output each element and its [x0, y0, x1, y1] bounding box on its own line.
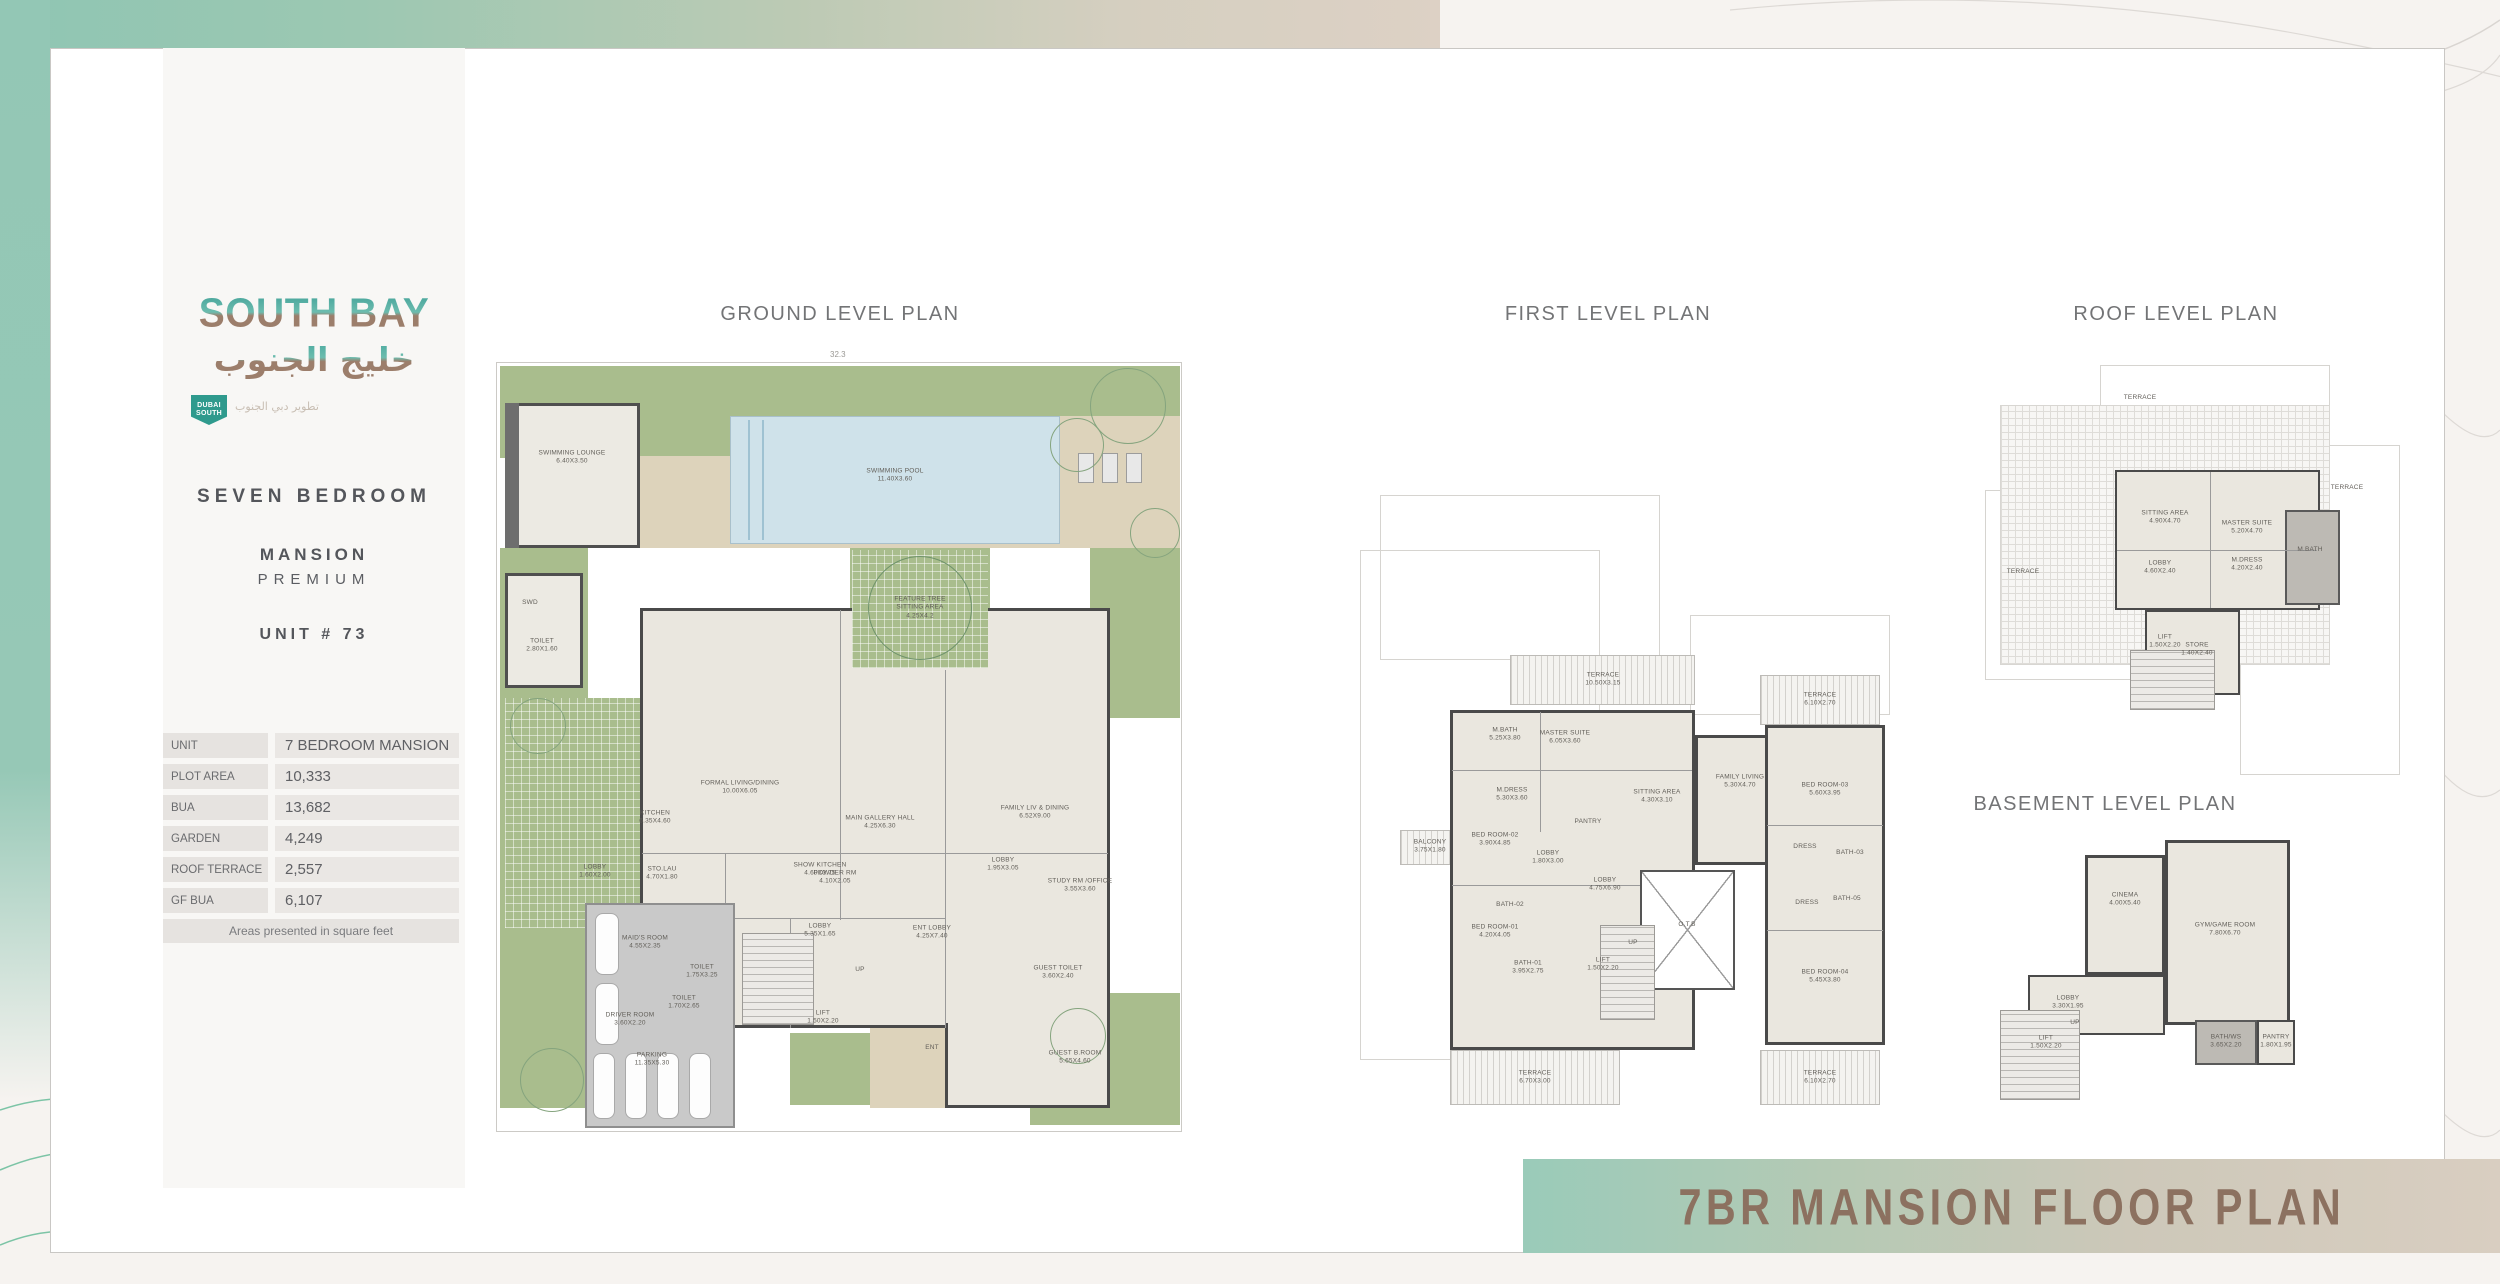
tree-icon [1050, 418, 1104, 472]
table-row-label: GARDEN [163, 826, 268, 851]
inner-wall [1767, 825, 1883, 826]
room-label: STO.LAU 4.70X1.80 [646, 866, 677, 883]
badge-tagline-arabic: تطوير دبي الجنوب [235, 400, 319, 413]
room-label: DRIVER ROOM 3.60X2.20 [606, 1012, 655, 1029]
brochure-page: SOUTH BAY خليج الجنوب DUBAI SOUTH تطوير … [0, 0, 2500, 1284]
car-icon [595, 913, 619, 975]
room-label: BATH-05 [1833, 895, 1861, 903]
room-label: POWDER RM 4.10X2.05 [814, 870, 857, 887]
ground-plan-title: GROUND LEVEL PLAN [590, 303, 1090, 326]
first-plan-title: FIRST LEVEL PLAN [1358, 303, 1858, 326]
table-row: GF BUA6,107 [163, 888, 459, 913]
room-label: M.BATH 5.25X3.80 [1489, 727, 1520, 744]
room-label: MAIN GALLERY HALL 4.25X6.30 [845, 815, 914, 832]
pool-lounger [1126, 453, 1142, 483]
room-label: TERRACE [2331, 484, 2363, 492]
room-label: GYM/GAME ROOM 7.80X6.70 [2195, 922, 2255, 939]
room-label: LOBBY 1.95X3.05 [987, 857, 1018, 874]
cinema-room [2085, 855, 2165, 975]
room-label: STORE 1.40X2.40 [2181, 642, 2212, 659]
table-row: PLOT AREA10,333 [163, 764, 459, 789]
inner-wall [2210, 472, 2211, 608]
table-row-value: 13,682 [275, 795, 459, 820]
room-label: ENT LOBBY 4.25X7.40 [913, 925, 951, 942]
topo-waves-right-margin [2440, 150, 2500, 1284]
stair-hatch [2000, 1010, 2080, 1100]
badge-text-bottom: SOUTH [196, 410, 222, 418]
room-label: TERRACE 6.10X2.70 [1804, 1070, 1836, 1087]
room-label: TERRACE [2124, 394, 2156, 402]
pool-lane-line [762, 420, 764, 540]
table-row-label: GF BUA [163, 888, 268, 913]
room-label: TERRACE 6.70X3.00 [1519, 1070, 1551, 1087]
room-label: O.T.B [1678, 921, 1695, 929]
room-label: BED ROOM-02 3.90X4.85 [1472, 832, 1519, 849]
room-label: LOBBY 5.35X1.65 [804, 923, 835, 940]
car-icon [593, 1053, 615, 1119]
room-label: MASTER SUITE 6.05X3.60 [1540, 730, 1590, 747]
stair-hatch [742, 933, 814, 1025]
area-table-body: UNIT7 BEDROOM MANSIONPLOT AREA10,333BUA1… [163, 733, 459, 913]
room-label: LOBBY 1.60X2.00 [579, 864, 610, 881]
inner-wall [2117, 550, 2317, 551]
room-label: SWD [522, 599, 538, 607]
table-row: GARDEN4,249 [163, 826, 459, 851]
left-accent-band [0, 0, 50, 1100]
room-label: LIFT 1.50X2.20 [1587, 957, 1618, 974]
room-label: SWIMMING POOL 11.40X3.60 [866, 468, 923, 485]
room-label: SITTING AREA 4.30X3.10 [1633, 789, 1680, 806]
room-label: LOBBY 1.80X3.00 [1532, 850, 1563, 867]
stair-hatch [2130, 650, 2215, 710]
room-label: BED ROOM-01 4.20X4.05 [1472, 924, 1519, 941]
table-row-label: BUA [163, 795, 268, 820]
room-label: BED ROOM-03 5.60X3.95 [1802, 782, 1849, 799]
lounge-wall [505, 403, 519, 548]
inner-wall [1767, 930, 1883, 931]
basement-plan-title: BASEMENT LEVEL PLAN [1855, 793, 2355, 816]
room-label: FEATURE TREE SITTING AREA 4.25X4.2 [894, 595, 945, 620]
room-label: UP [855, 966, 864, 974]
room-label: SITTING AREA 4.90X4.70 [2141, 510, 2188, 527]
room-label: LOBBY 3.30X1.95 [2052, 995, 2083, 1012]
room-label: GUEST B.ROOM 5.65X4.60 [1049, 1050, 1102, 1067]
car-icon [689, 1053, 711, 1119]
room-label: MASTER SUITE 5.20X4.70 [2222, 520, 2272, 537]
table-row-label: PLOT AREA [163, 764, 268, 789]
footer-banner: 7BR MANSION FLOOR PLAN [1523, 1159, 2500, 1253]
room-label: PARKING 11.35X5.30 [635, 1052, 670, 1069]
master-bath-block [2285, 510, 2340, 605]
room-label: LOBBY 4.60X2.40 [2144, 560, 2175, 577]
room-label: GUEST TOILET 3.60X2.40 [1034, 965, 1083, 982]
unit-type-mansion: MANSION [163, 545, 465, 565]
room-label: UP [2070, 1019, 2079, 1027]
room-label: DRESS [1795, 899, 1818, 907]
inner-wall [642, 853, 1108, 854]
table-row: UNIT7 BEDROOM MANSION [163, 733, 459, 758]
room-label: TERRACE 10.50X3.15 [1585, 672, 1620, 689]
room-label: PANTRY 1.80X1.95 [2260, 1034, 2291, 1051]
table-row-value: 7 BEDROOM MANSION [275, 733, 459, 758]
dubai-south-badge: DUBAI SOUTH [191, 395, 227, 425]
plot-dimension: 32.3 [830, 350, 846, 359]
table-row-value: 6,107 [275, 888, 459, 913]
room-label: LOBBY 4.75X6.90 [1589, 877, 1620, 894]
room-label: UP [1628, 939, 1637, 947]
unit-number: UNIT # 73 [163, 626, 465, 644]
room-label: FAMILY LIV & DINING 6.52X9.00 [1001, 805, 1070, 822]
room-label: ENT [925, 1044, 939, 1052]
room-label: TOILET 1.70X2.65 [668, 995, 699, 1012]
garden-toilet-room [505, 573, 583, 688]
table-row-label: ROOF TERRACE [163, 857, 268, 882]
first-level-plan: TERRACE 10.50X3.15M.BATH 5.25X3.80MASTER… [1360, 495, 1905, 1125]
room-label: BED ROOM-04 5.45X3.80 [1802, 969, 1849, 986]
room-label: KITCHEN 6.35X4.60 [639, 810, 670, 827]
pool-lounger [1102, 453, 1118, 483]
room-label: TERRACE 6.10X2.70 [1804, 692, 1836, 709]
room-label: BATH-03 [1836, 849, 1864, 857]
room-label: LIFT 1.50X2.20 [2030, 1035, 2061, 1052]
footer-banner-title: 7BR MANSION FLOOR PLAN [1678, 1176, 2345, 1235]
ground-footprint-outline [1380, 495, 1660, 660]
room-label: FAMILY LIVING 5.30X4.70 [1716, 774, 1764, 791]
tree-icon [1130, 508, 1180, 558]
room-label: LIFT 1.50X2.20 [2149, 634, 2180, 651]
room-label: M.DRESS 4.20X2.40 [2231, 557, 2262, 574]
room-label: M.BATH [2297, 546, 2322, 554]
room-label: BALCONY 3.75X1.80 [1414, 839, 1446, 856]
southbay-logo-arabic: خليج الجنوب [163, 340, 465, 379]
swimming-lounge-room [505, 403, 640, 548]
entry-path [870, 1028, 945, 1108]
unit-type-premium: PREMIUM [163, 571, 465, 588]
area-table-footnote: Areas presented in square feet [163, 919, 459, 943]
table-row-value: 2,557 [275, 857, 459, 882]
pool-lane-line [748, 420, 750, 540]
inner-wall [945, 670, 946, 1028]
top-accent-band [0, 0, 1440, 48]
area-table: UNIT7 BEDROOM MANSIONPLOT AREA10,333BUA1… [163, 733, 459, 943]
room-label: FORMAL LIVING/DINING 10.00X6.05 [701, 780, 780, 797]
inner-wall [1452, 770, 1692, 771]
room-label: STUDY RM /OFFICE 3.55X3.60 [1048, 878, 1112, 895]
ground-level-plan: 32.3 [490, 358, 1190, 1138]
room-label: CINEMA 4.00X5.40 [2109, 892, 2140, 909]
room-label: TOILET 1.75X3.25 [686, 964, 717, 981]
roof-plan-title: ROOF LEVEL PLAN [1926, 303, 2426, 326]
roof-level-plan: TERRACETERRACETERRACESITTING AREA 4.90X4… [1985, 350, 2405, 770]
unit-type-heading: SEVEN BEDROOM [163, 486, 465, 508]
floor-block [1765, 725, 1885, 1045]
table-row-value: 10,333 [275, 764, 459, 789]
room-label: DRESS [1793, 843, 1816, 851]
room-label: PANTRY [1575, 818, 1602, 826]
badge-text-top: DUBAI [197, 402, 221, 410]
basement-level-plan: CINEMA 4.00X5.40GYM/GAME ROOM 7.80X6.70L… [2000, 835, 2330, 1115]
tree-icon [510, 698, 566, 754]
room-label: M.DRESS 5.30X3.60 [1496, 787, 1527, 804]
table-row: ROOF TERRACE2,557 [163, 857, 459, 882]
table-row: BUA13,682 [163, 795, 459, 820]
table-row-value: 4,249 [275, 826, 459, 851]
room-label: LIFT 1.50X2.20 [807, 1010, 838, 1027]
room-label: SWIMMING LOUNGE 6.40X3.50 [539, 450, 606, 467]
table-row-label: UNIT [163, 733, 268, 758]
room-label: BATH-02 [1496, 901, 1524, 909]
room-label: MAID'S ROOM 4.55X2.35 [622, 935, 668, 952]
room-label: BATH-01 3.95X2.75 [1512, 960, 1543, 977]
sidebar-panel: SOUTH BAY خليج الجنوب DUBAI SOUTH تطوير … [163, 48, 465, 1188]
room-label: BATH/WS 3.65X2.20 [2210, 1034, 2241, 1051]
tree-icon [520, 1048, 584, 1112]
room-label: TERRACE [2007, 568, 2039, 576]
southbay-logo: SOUTH BAY [163, 291, 465, 337]
room-label: TOILET 2.80X1.60 [526, 638, 557, 655]
